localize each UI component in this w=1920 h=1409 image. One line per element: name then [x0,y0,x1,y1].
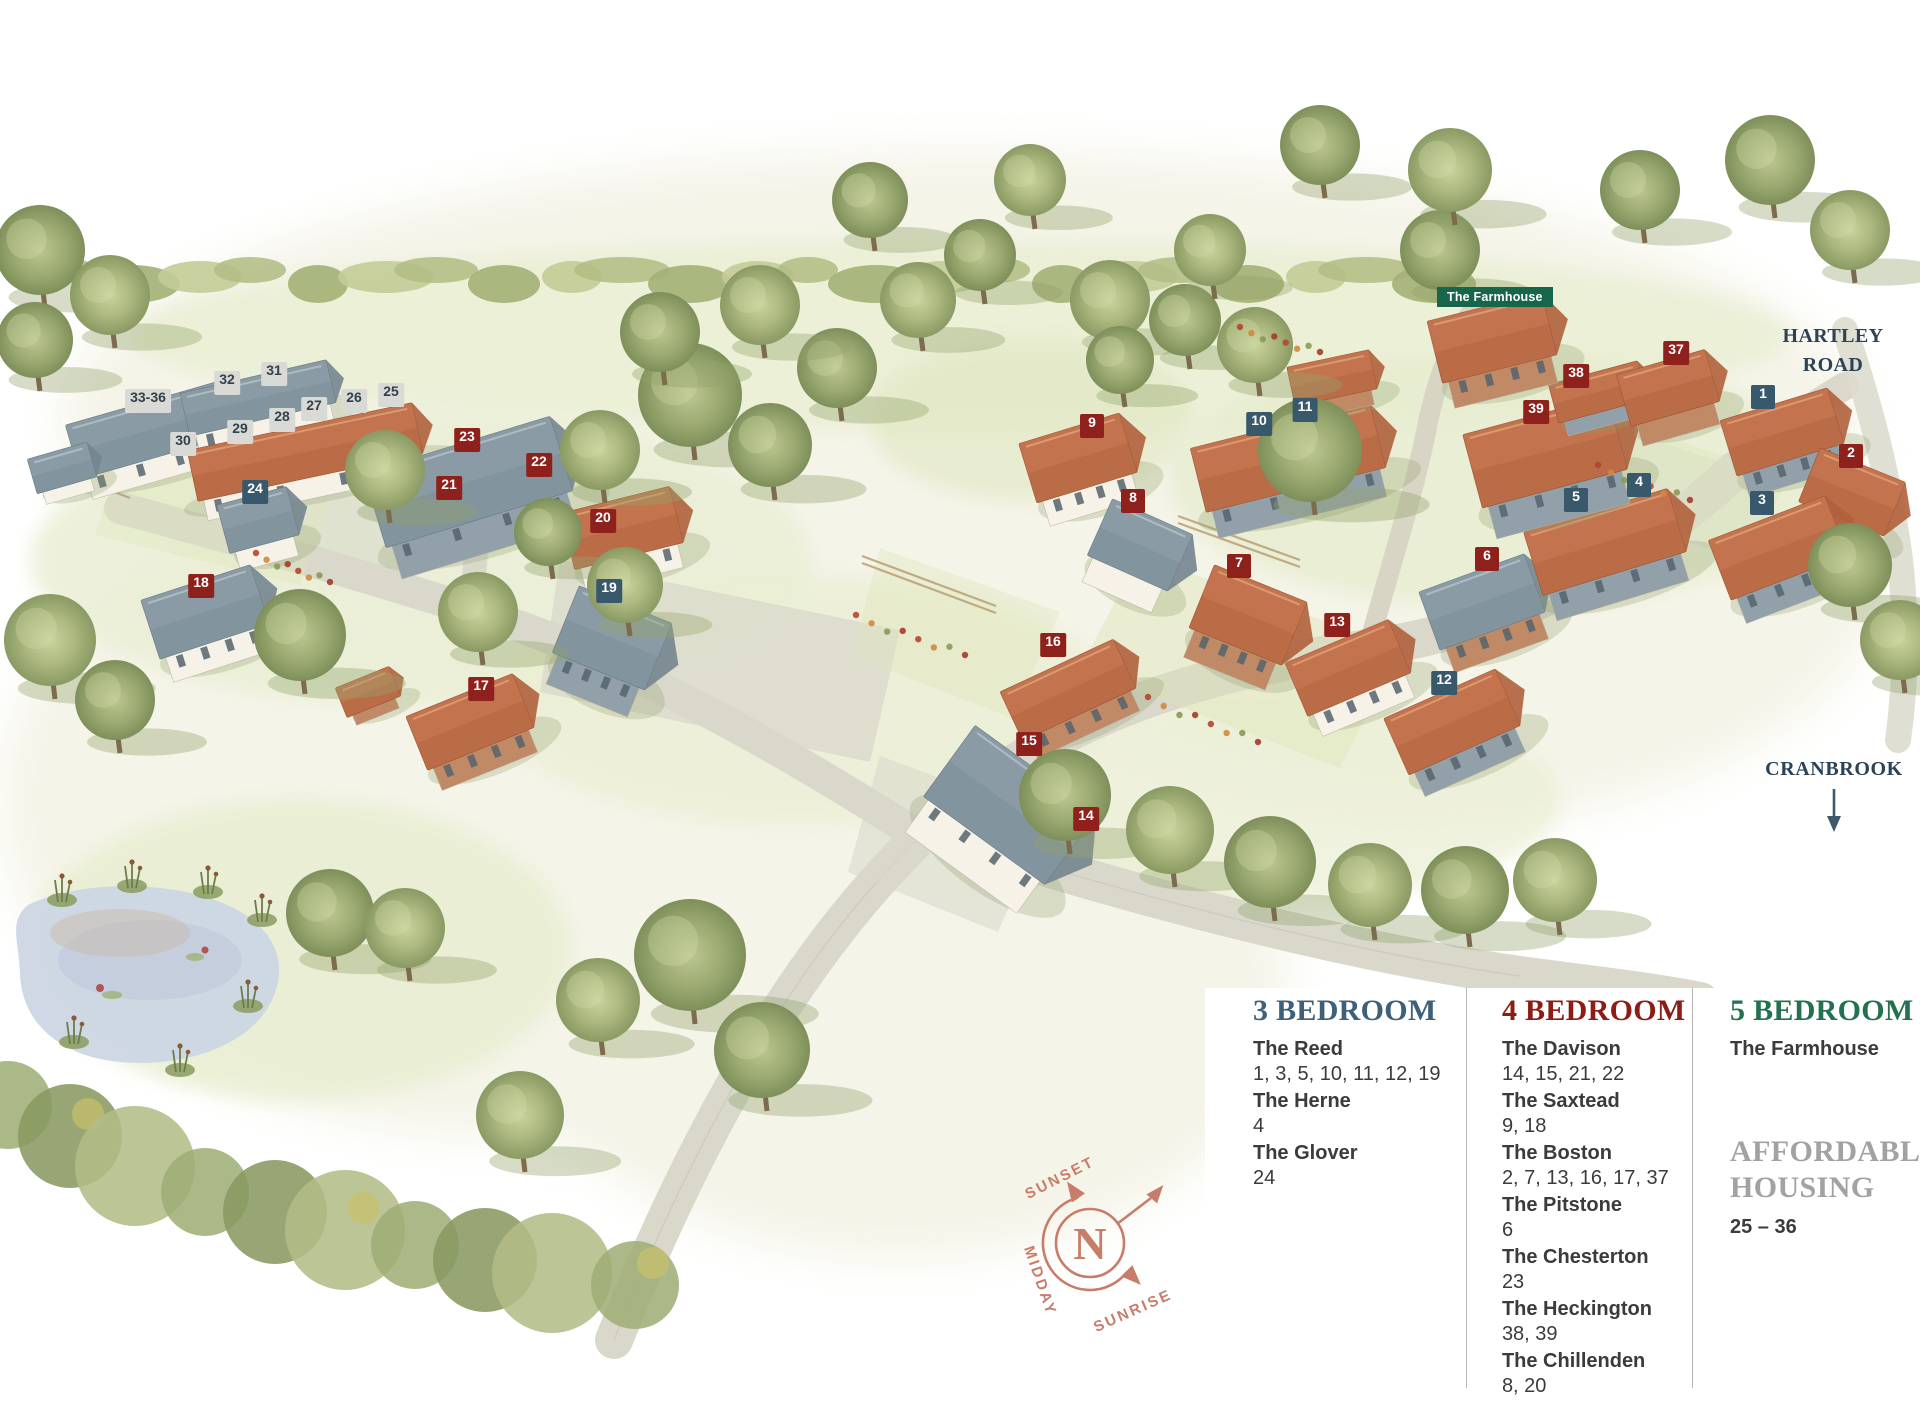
plot-marker-16[interactable]: 16 [1040,633,1066,657]
plot-marker-27[interactable]: 27 [301,397,327,421]
house-type-plots: 8, 20 [1502,1374,1692,1399]
farmhouse-badge: The Farmhouse [1437,287,1553,307]
plot-marker-7[interactable]: 7 [1227,554,1251,578]
affordable-housing-heading: AFFORDABLE HOUSING [1730,1134,1920,1206]
house-type-name: The Davison [1502,1037,1692,1062]
legend-item: The Boston2, 7, 13, 16, 17, 37 [1502,1141,1692,1191]
plot-marker-39[interactable]: 39 [1523,400,1549,424]
house-type-name: The Reed [1253,1037,1466,1062]
legend-item: The Reed1, 3, 5, 10, 11, 12, 19 [1253,1037,1466,1087]
hartley-road-label: HARTLEY ROAD [1757,322,1909,380]
legend: 3 BEDROOM The Reed1, 3, 5, 10, 11, 12, 1… [1205,988,1920,1388]
plot-marker-29[interactable]: 29 [227,420,253,444]
house-type-name: The Farmhouse [1730,1037,1920,1062]
house-type-name: The Chesterton [1502,1245,1692,1270]
house-type-plots: 2, 7, 13, 16, 17, 37 [1502,1166,1692,1191]
plot-marker-37[interactable]: 37 [1663,341,1689,365]
plot-marker-6[interactable]: 6 [1475,547,1499,571]
house-type-name: The Heckington [1502,1297,1692,1322]
plot-marker-12[interactable]: 12 [1431,671,1457,695]
plot-marker-33-36[interactable]: 33-36 [125,389,171,413]
house-type-plots: 14, 15, 21, 22 [1502,1062,1692,1087]
plot-marker-8[interactable]: 8 [1121,489,1145,513]
legend-heading-4bed: 4 BEDROOM [1502,994,1692,1027]
plot-marker-31[interactable]: 31 [261,362,287,386]
plot-marker-23[interactable]: 23 [454,428,480,452]
plot-marker-28[interactable]: 28 [269,408,295,432]
plot-marker-10[interactable]: 10 [1246,412,1272,436]
plot-marker-26[interactable]: 26 [341,389,367,413]
sunrise-arrow-icon [1121,1265,1146,1290]
house-type-name: The Boston [1502,1141,1692,1166]
cranbrook-arrow-icon [1825,788,1843,834]
house-type-plots: 6 [1502,1218,1692,1243]
legend-item: The Chillenden8, 20 [1502,1349,1692,1399]
plot-marker-38[interactable]: 38 [1563,364,1589,388]
plot-marker-13[interactable]: 13 [1324,613,1350,637]
house-type-name: The Herne [1253,1089,1466,1114]
plot-marker-9[interactable]: 9 [1080,414,1104,438]
plot-marker-21[interactable]: 21 [436,476,462,500]
house-type-plots: 24 [1253,1166,1466,1191]
plot-marker-25[interactable]: 25 [378,383,404,407]
house-type-plots: 4 [1253,1114,1466,1139]
legend-heading-5bed: 5 BEDROOM [1730,994,1920,1027]
plot-marker-11[interactable]: 11 [1293,398,1318,422]
house-type-name: The Pitstone [1502,1193,1692,1218]
plot-marker-14[interactable]: 14 [1073,807,1099,831]
plot-marker-4[interactable]: 4 [1627,473,1651,497]
legend-item: The Davison14, 15, 21, 22 [1502,1037,1692,1087]
site-plan-canvas: 1234567891011121314151617181920212223242… [0,0,1920,1409]
house-type-name: The Saxtead [1502,1089,1692,1114]
affordable-housing-block: AFFORDABLE HOUSING 25 – 36 [1730,1134,1920,1239]
plot-marker-15[interactable]: 15 [1016,732,1042,756]
house-type-plots: 38, 39 [1502,1322,1692,1347]
house-type-plots: 1, 3, 5, 10, 11, 12, 19 [1253,1062,1466,1087]
plot-marker-2[interactable]: 2 [1839,444,1863,468]
compass-north-letter: N [1073,1218,1106,1269]
cranbrook-label: CRANBROOK [1754,758,1914,781]
legend-item: The Heckington38, 39 [1502,1297,1692,1347]
plot-marker-24[interactable]: 24 [242,480,268,504]
legend-item: The Glover24 [1253,1141,1466,1191]
plot-marker-5[interactable]: 5 [1564,488,1588,512]
house-type-name: The Chillenden [1502,1349,1692,1374]
plot-marker-20[interactable]: 20 [590,509,616,533]
legend-column-3bed: 3 BEDROOM The Reed1, 3, 5, 10, 11, 12, 1… [1205,988,1467,1388]
house-type-name: The Glover [1253,1141,1466,1166]
plot-marker-17[interactable]: 17 [468,677,494,701]
plot-marker-1[interactable]: 1 [1751,385,1775,409]
house-type-plots: 23 [1502,1270,1692,1295]
legend-column-5bed: 5 BEDROOM The Farmhouse AFFORDABLE HOUSI… [1693,988,1920,1388]
plot-marker-32[interactable]: 32 [214,371,240,395]
plot-marker-30[interactable]: 30 [170,432,196,456]
legend-column-4bed: 4 BEDROOM The Davison14, 15, 21, 22The S… [1467,988,1693,1388]
plot-marker-22[interactable]: 22 [526,453,552,477]
legend-item: The Chesterton23 [1502,1245,1692,1295]
plot-marker-3[interactable]: 3 [1750,491,1774,515]
legend-item: The Pitstone6 [1502,1193,1692,1243]
legend-item: The Farmhouse [1730,1037,1920,1062]
affordable-housing-plots: 25 – 36 [1730,1216,1920,1239]
legend-item: The Herne4 [1253,1089,1466,1139]
plot-marker-19[interactable]: 19 [596,579,622,603]
plot-marker-18[interactable]: 18 [188,574,214,598]
legend-heading-3bed: 3 BEDROOM [1253,994,1466,1027]
house-type-plots: 9, 18 [1502,1114,1692,1139]
legend-item: The Saxtead9, 18 [1502,1089,1692,1139]
